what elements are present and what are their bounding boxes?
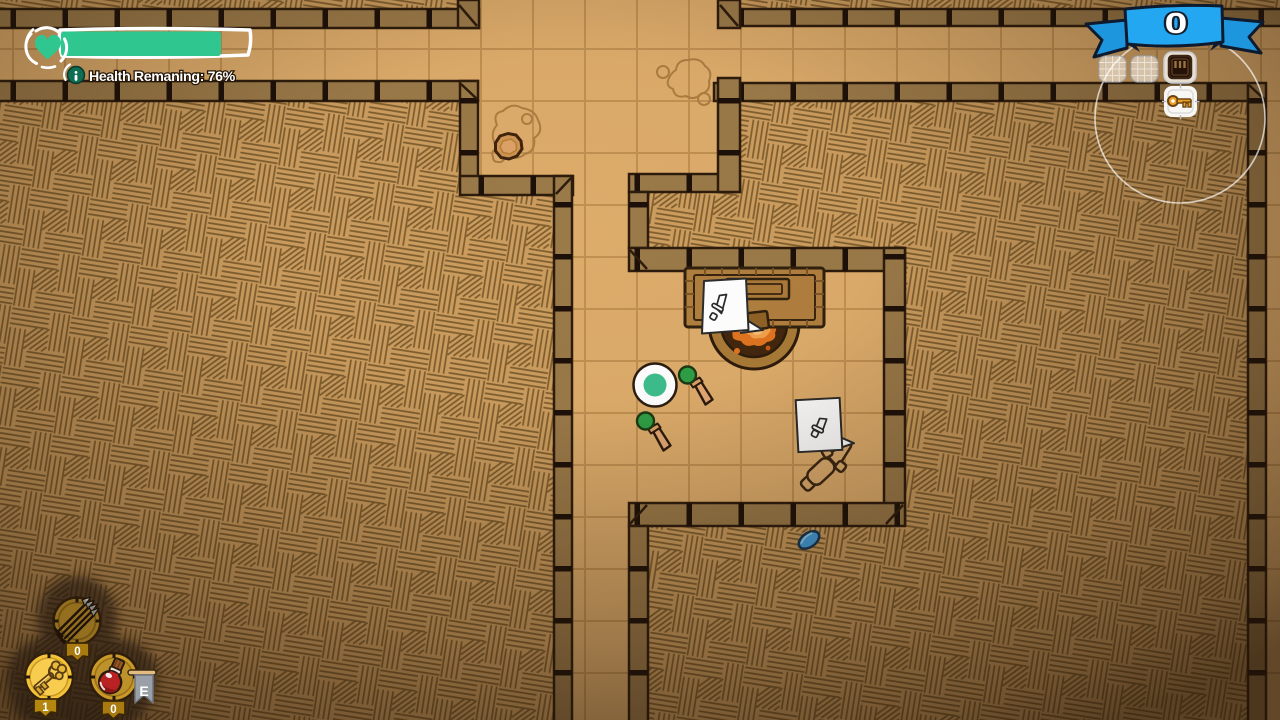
svg-text:0: 0 <box>74 646 80 658</box>
svg-text:E: E <box>139 683 148 699</box>
svg-text:0: 0 <box>110 704 116 716</box>
svg-text:1: 1 <box>42 702 49 714</box>
svg-text:0: 0 <box>1165 7 1188 40</box>
svg-text:Health Remaning: 76%: Health Remaning: 76% <box>89 69 236 85</box>
